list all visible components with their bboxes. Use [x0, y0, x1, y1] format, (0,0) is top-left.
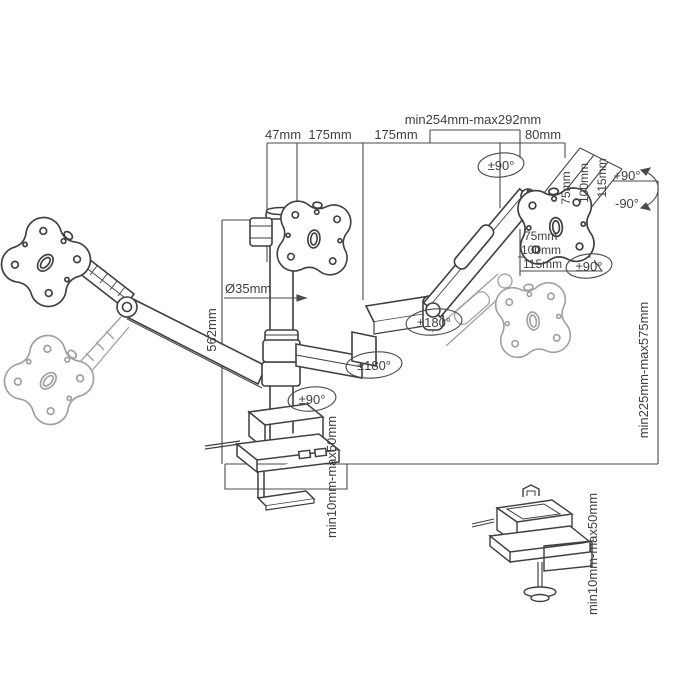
label-vesa-diag-100: 100mm [577, 163, 591, 203]
label-vesa-diag-75: 75mm [559, 171, 573, 204]
label-grommet-range: min10mm-max50mm [585, 493, 600, 615]
label-80mm: 80mm [525, 127, 561, 142]
label-vesa-horiz-115: 115mm [523, 257, 562, 271]
label-pole-height: 562mm [204, 308, 219, 351]
label-arm-swivel-outer: ±180° [417, 315, 451, 330]
label-vesa-diag-115: 115mm [595, 158, 609, 197]
label-base-swivel: ±90° [299, 392, 326, 407]
technical-drawing-page: 47mm 175mm 175mm min254mm-max292mm 80mm … [0, 0, 675, 675]
centre-plate [250, 199, 353, 277]
label-head-rotate: ±90° [576, 259, 603, 274]
label-175mm-2: 175mm [374, 127, 417, 142]
label-175mm-1: 175mm [308, 127, 351, 142]
grommet-mount-detail [472, 485, 592, 602]
monitor-arm-diagram: 47mm 175mm 175mm min254mm-max292mm 80mm … [0, 0, 675, 675]
label-arm-swivel-inner: ±180° [357, 358, 391, 373]
desk-clamp [205, 404, 339, 510]
label-47mm: 47mm [265, 127, 301, 142]
label-pole-diameter: Ø35mm [225, 281, 271, 296]
label-vesa-horiz-75: 75mm [524, 229, 557, 243]
label-tilt-down: -90° [615, 196, 639, 211]
label-height-range: min225mm-max575mm [636, 302, 651, 439]
label-clamp-range: min10mm-max50mm [324, 416, 339, 538]
label-tilt-up: +90° [613, 168, 640, 183]
label-head-swivel: ±90° [488, 158, 515, 173]
label-vesa-horiz-100: 100mm [521, 243, 561, 257]
label-min254-max292: min254mm-max292mm [405, 112, 542, 127]
